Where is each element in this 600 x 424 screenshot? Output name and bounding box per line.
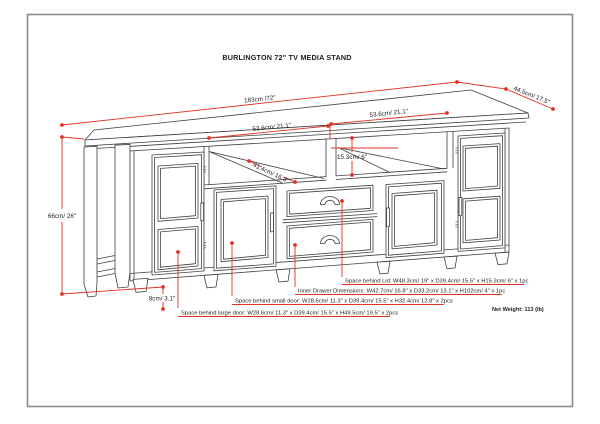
net-weight: Net Weight: 113 (lb)	[492, 307, 544, 313]
dim-top-width: 183cm /72"	[244, 95, 276, 105]
door-handle	[271, 213, 274, 232]
note-space-behind-lid: Space behind Lid: W48.3cm/ 19" x D39.4cm…	[345, 279, 528, 285]
door-handle	[201, 203, 204, 221]
dim-overall-height: 66cm/ 26"	[48, 213, 76, 220]
tv-stand-dimension-diagram: BURLINGTON 72" TV MEDIA STAND 183cm /72"…	[0, 0, 600, 424]
spec-sheet-page: BURLINGTON 72" TV MEDIA STAND 183cm /72"…	[0, 0, 600, 424]
note-inner-drawer-dimensions: Inner Drawer Dimensions: W42.7cm/ 16.8" …	[298, 289, 505, 295]
left-small-door	[214, 186, 276, 271]
note-space-behind-small-door: Space behind small door: W28.6cm/ 11.3" …	[235, 299, 453, 305]
right-small-door	[386, 181, 444, 258]
page-title: BURLINGTON 72" TV MEDIA STAND	[222, 53, 351, 62]
dim-top-depth: 44.5cm/ 17.5"	[512, 85, 550, 106]
interior-notes: Space behind Lid: W48.3cm/ 19" x D39.4cm…	[181, 279, 528, 317]
left-side-panel	[84, 144, 130, 297]
dim-opening-height: 15.3cm/ 6"	[337, 154, 367, 161]
door-handle	[459, 197, 462, 215]
door-handle	[387, 208, 390, 227]
dim-leg-height: 8cm/ 3.1"	[149, 296, 175, 303]
furniture-drawing	[84, 90, 529, 297]
note-space-behind-large-door: Space behind large door: W28.6cm/ 11.3" …	[181, 311, 398, 317]
right-large-door	[458, 133, 505, 251]
